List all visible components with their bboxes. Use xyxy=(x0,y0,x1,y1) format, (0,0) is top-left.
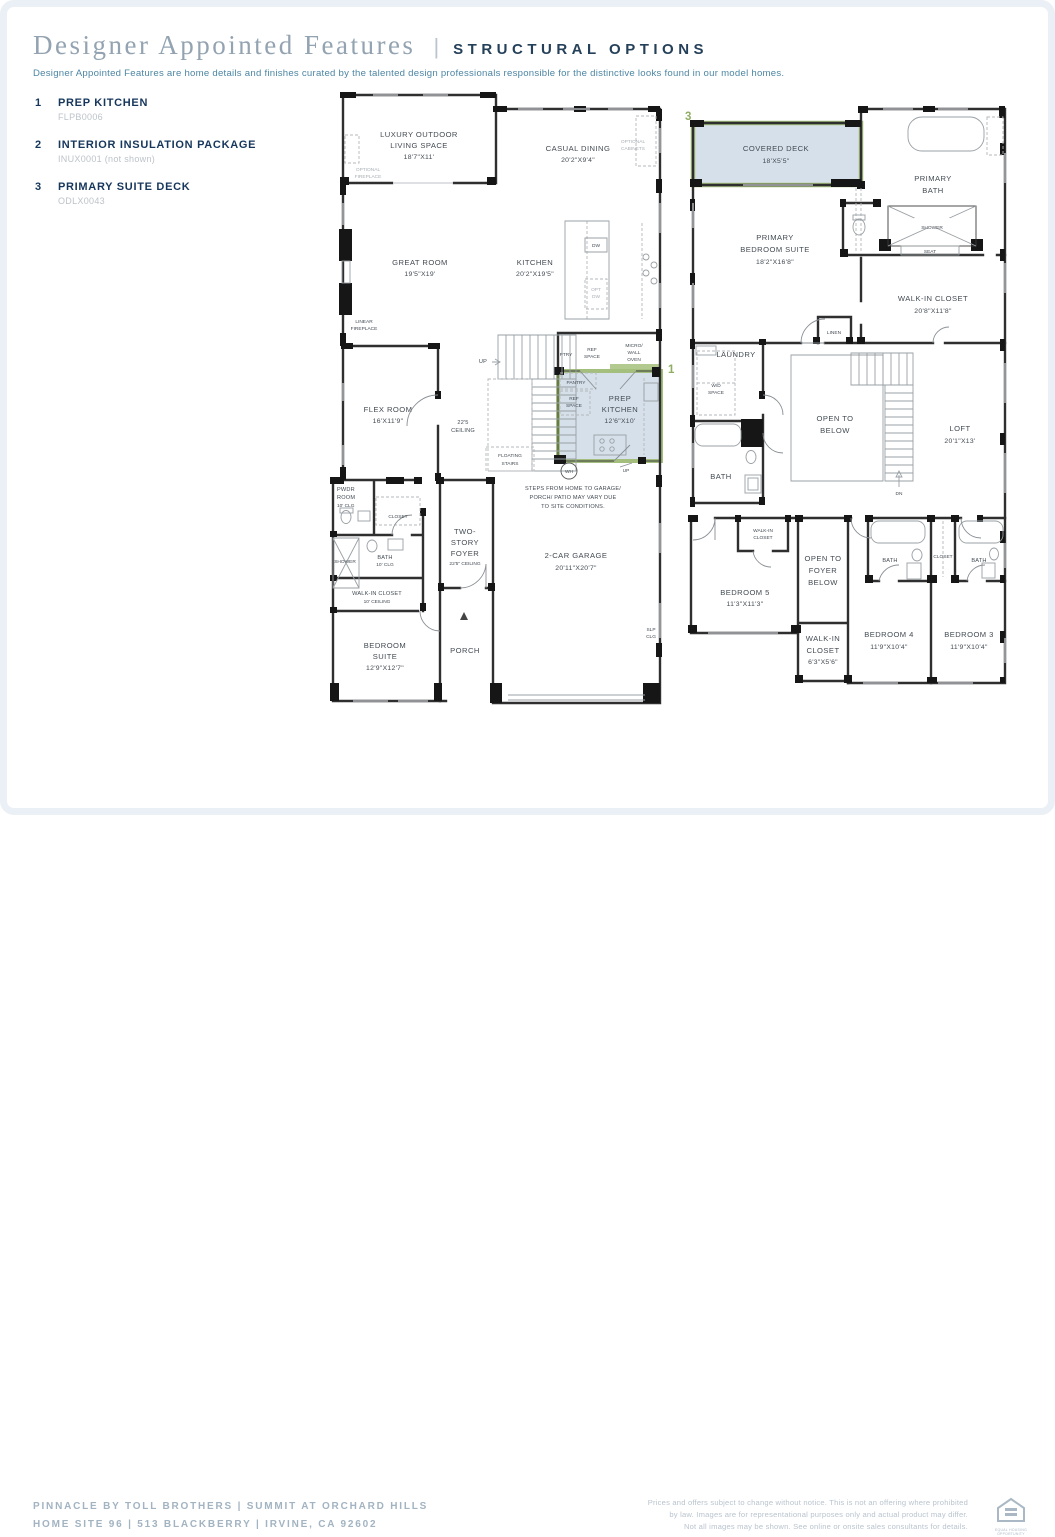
f1-ref-space-label: SPACE xyxy=(584,354,600,360)
f1-foyer-label: FOYER xyxy=(451,549,479,558)
legend-item-title: INTERIOR INSULATION PACKAGE xyxy=(58,139,256,151)
f1-pwdr-label: ROOM xyxy=(337,495,355,501)
f1-opt-dw-label: DW xyxy=(592,294,600,300)
f1-pantry-label: PANTRY xyxy=(566,380,586,386)
f1-option-marker-1: 1 xyxy=(668,364,675,376)
header: Designer Appointed Features | STRUCTURAL… xyxy=(33,30,784,79)
floor2-plan: COVERED DECK 18'X5'5" PRIMARY BATH SHOWE… xyxy=(683,103,1017,713)
f1-bedroom-suite-label: BEDROOM xyxy=(364,641,406,650)
legend-item-number: 1 xyxy=(35,97,58,109)
f2-primary-bedroom-dims: 18'2"X16'8" xyxy=(756,259,794,266)
f1-prep-kitchen-label: KITCHEN xyxy=(602,405,638,414)
f2-seat-label: SEAT xyxy=(924,249,936,255)
f1-walkin-closet-label: WALK-IN CLOSET xyxy=(352,591,402,597)
legend-item-suite-deck: 3PRIMARY SUITE DECK ODLX0043 xyxy=(35,181,256,206)
legend-item-code: FLPB0006 xyxy=(58,112,256,122)
f2-shower-label: SHOWER xyxy=(921,225,943,231)
f2-bedroom3-label: BEDROOM 3 xyxy=(944,630,994,639)
f1-outdoor-label: LUXURY OUTDOOR xyxy=(380,130,458,139)
f1-kitchen-label: KITCHEN xyxy=(517,258,553,267)
footer-location: PINNACLE BY TOLL BROTHERS | SUMMIT AT OR… xyxy=(33,1498,428,1533)
f1-slp-clg-label: SLP xyxy=(646,627,655,633)
f1-micro-wall-oven-label: MICRO/ xyxy=(625,343,643,349)
f2-linen-label: LINEN xyxy=(827,330,842,336)
f1-flex-room-label: FLEX ROOM xyxy=(364,405,413,414)
f1-ref-space-label: REF xyxy=(587,347,597,353)
f2-labels: COVERED DECK 18'X5'5" PRIMARY BATH SHOWE… xyxy=(685,111,994,666)
f2-covered-deck-label: COVERED DECK xyxy=(743,144,809,153)
f1-foyer-label: STORY xyxy=(451,538,479,547)
f2-wic5-dims: 6'3"X5'6" xyxy=(808,659,838,666)
f1-up-label: UP xyxy=(479,359,487,365)
f2-wd-space-label: W/D xyxy=(711,383,721,389)
equal-housing-caption: EQUAL HOUSING OPPORTUNITY xyxy=(994,1528,1028,1537)
f1-outdoor-dims: 18'7"X11' xyxy=(404,154,435,161)
f1-garage-dims: 20'11"X20'7" xyxy=(555,565,597,572)
f1-casual-dining-dims: 20'2"X9'4" xyxy=(561,157,595,164)
legend-item-number: 3 xyxy=(35,181,58,193)
f2-bedroom3-dims: 11'9"X10'4" xyxy=(950,644,988,651)
title-row: Designer Appointed Features | STRUCTURAL… xyxy=(33,30,784,61)
f1-floating-stairs-label: STAIRS xyxy=(502,461,519,467)
f1-dashed-elements xyxy=(345,116,656,525)
f1-bedroom-suite-label: SUITE xyxy=(373,652,398,661)
f1-foyer-label: TWO- xyxy=(454,527,476,536)
f2-wic-small-label: WALK-IN xyxy=(753,528,773,534)
f2-open-to-foyer-label: OPEN TO xyxy=(804,554,841,563)
f2-walkin-closet-label: WALK-IN CLOSET xyxy=(898,294,968,303)
legend-item-insulation: 2INTERIOR INSULATION PACKAGE INUX0001 (n… xyxy=(35,139,256,164)
f1-porch-label: PORCH xyxy=(450,646,480,655)
f2-open-to-below-label: BELOW xyxy=(820,426,850,435)
f1-ceiling-label: CEILING xyxy=(451,428,475,434)
f2-primary-bath-label: PRIMARY xyxy=(914,174,952,183)
f2-walkin-closet-dims: 20'8"X11'8" xyxy=(914,308,952,315)
options-legend: 1PREP KITCHEN FLPB0006 2INTERIOR INSULAT… xyxy=(35,97,256,223)
f2-covered-deck-dims: 18'X5'5" xyxy=(762,158,789,165)
footer: PINNACLE BY TOLL BROTHERS | SUMMIT AT OR… xyxy=(0,745,1055,815)
floor1-plan: LUXURY OUTDOOR LIVING SPACE 18'7"X11' OP… xyxy=(328,83,680,711)
f1-dw-label: DW xyxy=(592,243,600,249)
f1-outdoor-label: LIVING SPACE xyxy=(390,141,448,150)
f2-loft-label: LOFT xyxy=(949,424,970,433)
f1-prep-kitchen-label: PREP xyxy=(609,394,631,403)
f2-open-to-foyer-label: BELOW xyxy=(808,578,838,587)
footer-address-line: HOME SITE 96 | 513 BLACKBERRY | IRVINE, … xyxy=(33,1516,428,1534)
f1-micro-wall-oven-label: OVEN xyxy=(627,357,641,363)
f1-opt-dw-label: OPT xyxy=(591,287,601,293)
f1-bedroom-suite-dims: 12'9"X12'7" xyxy=(366,665,404,672)
f1-walkin-closet-label: 10' CEILING xyxy=(364,599,391,605)
f1-ref-space2-label: SPACE xyxy=(566,403,582,409)
f1-opt-fireplace-label: OPTIONAL xyxy=(356,167,381,173)
f1-north-triangle xyxy=(460,612,468,620)
f2-bath-left-label: BATH xyxy=(710,472,732,481)
f1-water-heater-label: WH xyxy=(565,469,574,475)
f1-casual-dining-label: CASUAL DINING xyxy=(546,144,611,153)
legend-item-code: INUX0001 (not shown) xyxy=(58,154,256,164)
f1-shower-label: SHOWER xyxy=(334,559,356,565)
f1-great-room-dims: 19'5"X19' xyxy=(404,271,435,278)
f2-wic5-label: WALK-IN xyxy=(806,634,841,643)
legal-line: by law. Images are for representational … xyxy=(640,1509,968,1521)
equal-housing-house-icon xyxy=(996,1497,1026,1523)
legend-item-prep-kitchen: 1PREP KITCHEN FLPB0006 xyxy=(35,97,256,122)
f1-steps-note: TO SITE CONDITIONS. xyxy=(541,504,605,510)
f1-flex-room-dims: 16'X11'9" xyxy=(373,418,404,425)
f1-micro-wall-oven-label: WALL xyxy=(628,350,641,356)
footer-legal: Prices and offers subject to change with… xyxy=(640,1497,968,1532)
f1-pwdr-label: PWDR xyxy=(337,487,355,493)
f2-primary-bedroom-label: PRIMARY xyxy=(756,233,794,242)
f2-primary-bath-label: BATH xyxy=(922,186,944,195)
f2-wic5-label: CLOSET xyxy=(806,646,839,655)
f1-bath-clg-label: 10' CLG xyxy=(376,562,394,568)
f1-linear-fireplace-label: FIREPLACE xyxy=(351,326,378,332)
f1-floating-stairs-label: FLOATING xyxy=(498,453,522,459)
f2-bedroom5-label: BEDROOM 5 xyxy=(720,588,770,597)
f1-opt-cabinets-label: OPTIONAL xyxy=(621,139,646,145)
f1-garage-label: 2-CAR GARAGE xyxy=(545,551,608,560)
f2-bath4-label: BATH xyxy=(882,558,897,564)
f2-bedroom4-dims: 11'9"X10'4" xyxy=(870,644,908,651)
title-divider: | xyxy=(433,34,439,60)
f1-great-room-label: GREAT ROOM xyxy=(392,258,448,267)
f2-bedroom5-dims: 11'3"X11'3" xyxy=(727,601,764,608)
f2-bath3-label: BATH xyxy=(971,558,986,564)
f1-slp-clg-label: CLG xyxy=(646,634,656,640)
f2-loft-dims: 20'1"X13' xyxy=(944,438,975,445)
f1-closet-label: CLOSET xyxy=(388,514,407,520)
f2-dn-label: DN xyxy=(896,491,903,497)
f1-pwdr-clg-label: 10' CLG xyxy=(337,503,355,509)
legend-item-code: ODLX0043 xyxy=(58,196,256,206)
legend-item-title: PRIMARY SUITE DECK xyxy=(58,181,190,193)
legend-item-title: PREP KITCHEN xyxy=(58,97,148,109)
f1-pantry-cab-label: PTRY xyxy=(560,352,574,358)
f1-opt-fireplace-label: FIREPLACE xyxy=(355,174,382,180)
f2-closet-label: CLOSET xyxy=(933,554,952,560)
f2-wd-space-label: SPACE xyxy=(708,390,724,396)
f2-covered-deck-highlight xyxy=(693,123,861,185)
f1-ref-space2-label: REF xyxy=(569,396,579,402)
f1-opt-cabinets-label: CABINETS xyxy=(621,146,645,152)
f1-labels: LUXURY OUTDOOR LIVING SPACE 18'7"X11' OP… xyxy=(334,130,675,672)
f2-primary-bedroom-label: BEDROOM SUITE xyxy=(740,245,810,254)
f1-up2-label: UP xyxy=(623,468,630,474)
legal-line: Prices and offers subject to change with… xyxy=(640,1497,968,1509)
f1-kitchen-dims: 20'2"X19'5" xyxy=(516,271,554,278)
f2-wic-small-label: CLOSET xyxy=(753,535,772,541)
f2-open-to-foyer-label: FOYER xyxy=(809,566,837,575)
f2-option-marker-3: 3 xyxy=(685,111,691,123)
f1-linear-fireplace-label: LINEAR xyxy=(355,319,373,325)
f1-steps-note: STEPS FROM HOME TO GARAGE/ xyxy=(525,486,621,492)
legend-item-number: 2 xyxy=(35,139,58,151)
legal-line: Not all images may be shown. See online … xyxy=(640,1521,968,1533)
f1-ceiling-label: 22'5 xyxy=(457,420,468,426)
header-description: Designer Appointed Features are home det… xyxy=(33,68,784,79)
footer-community-line: PINNACLE BY TOLL BROTHERS | SUMMIT AT OR… xyxy=(33,1498,428,1516)
f1-bath-label: BATH xyxy=(377,555,392,561)
page-title: Designer Appointed Features xyxy=(33,30,415,61)
f2-bedroom4-label: BEDROOM 4 xyxy=(864,630,914,639)
f2-laundry-label: LAUNDRY xyxy=(716,350,755,359)
f1-prep-kitchen-dims: 12'6"X10' xyxy=(604,418,635,425)
equal-housing-logo: EQUAL HOUSING OPPORTUNITY xyxy=(994,1497,1028,1537)
f1-steps-note: PORCH/ PATIO MAY VARY DUE xyxy=(530,495,617,501)
f2-open-to-below-label: OPEN TO xyxy=(816,414,853,423)
f1-foyer-ceiling-label: 22'5" CEILING xyxy=(449,561,480,567)
structural-options-label: STRUCTURAL OPTIONS xyxy=(453,41,708,58)
